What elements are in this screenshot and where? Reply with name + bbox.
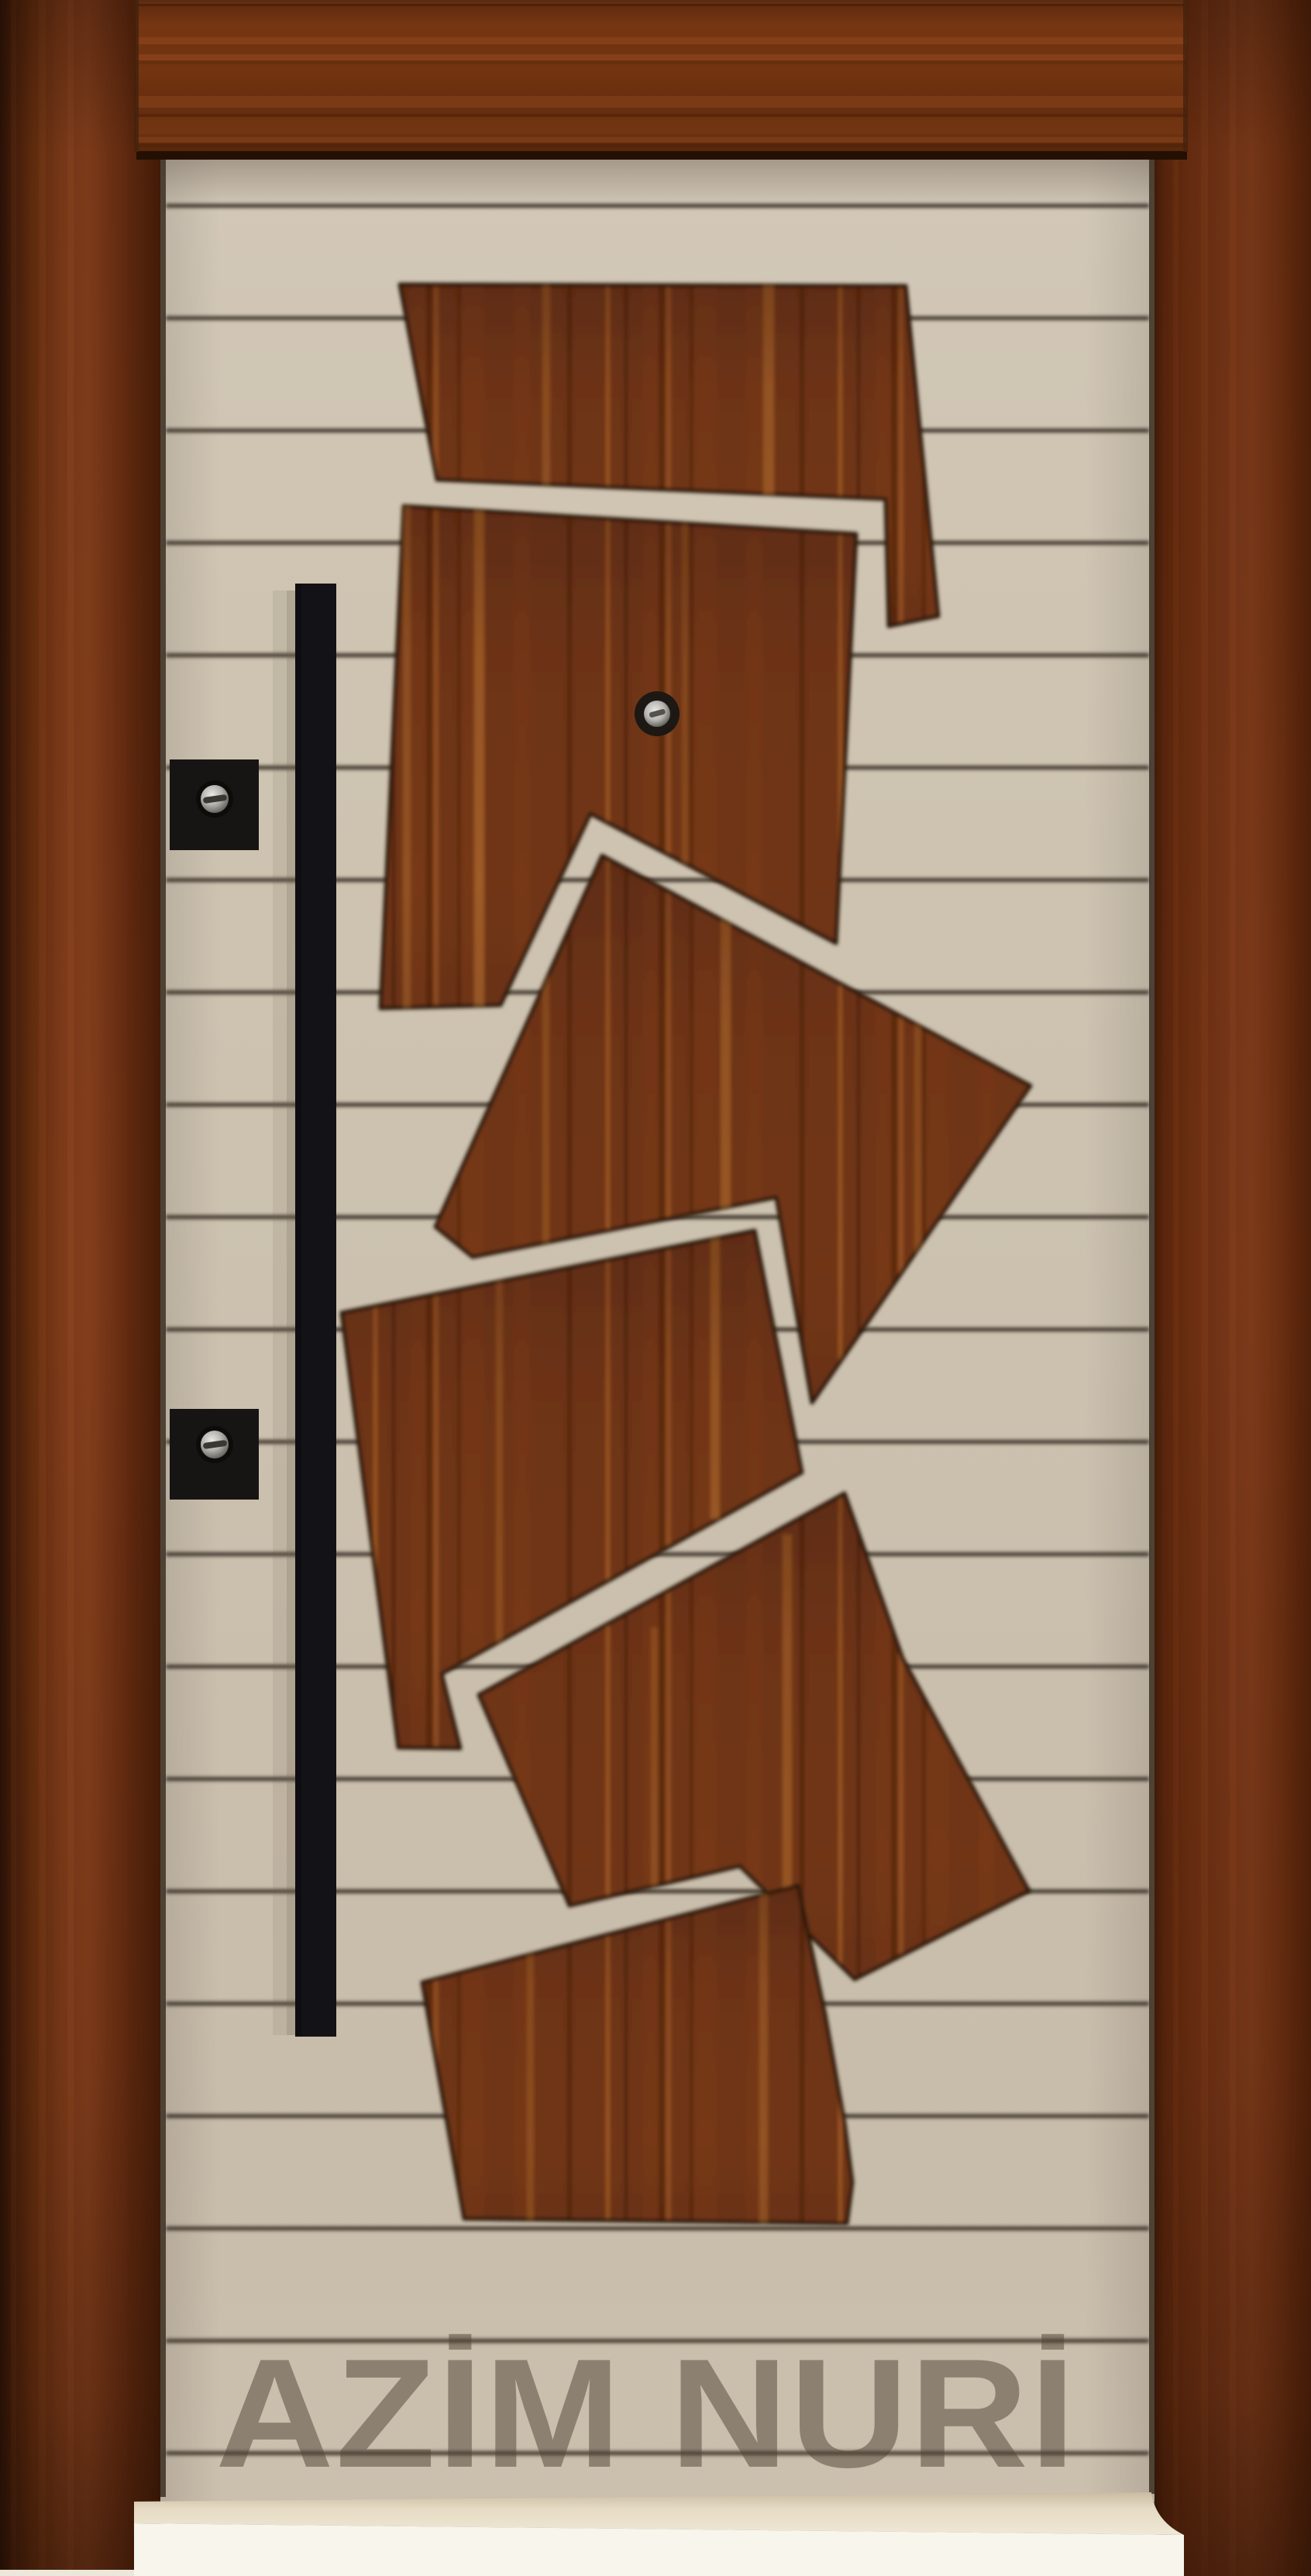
svg-text:AZİM NURİ: AZİM NURİ	[215, 2327, 1077, 2500]
